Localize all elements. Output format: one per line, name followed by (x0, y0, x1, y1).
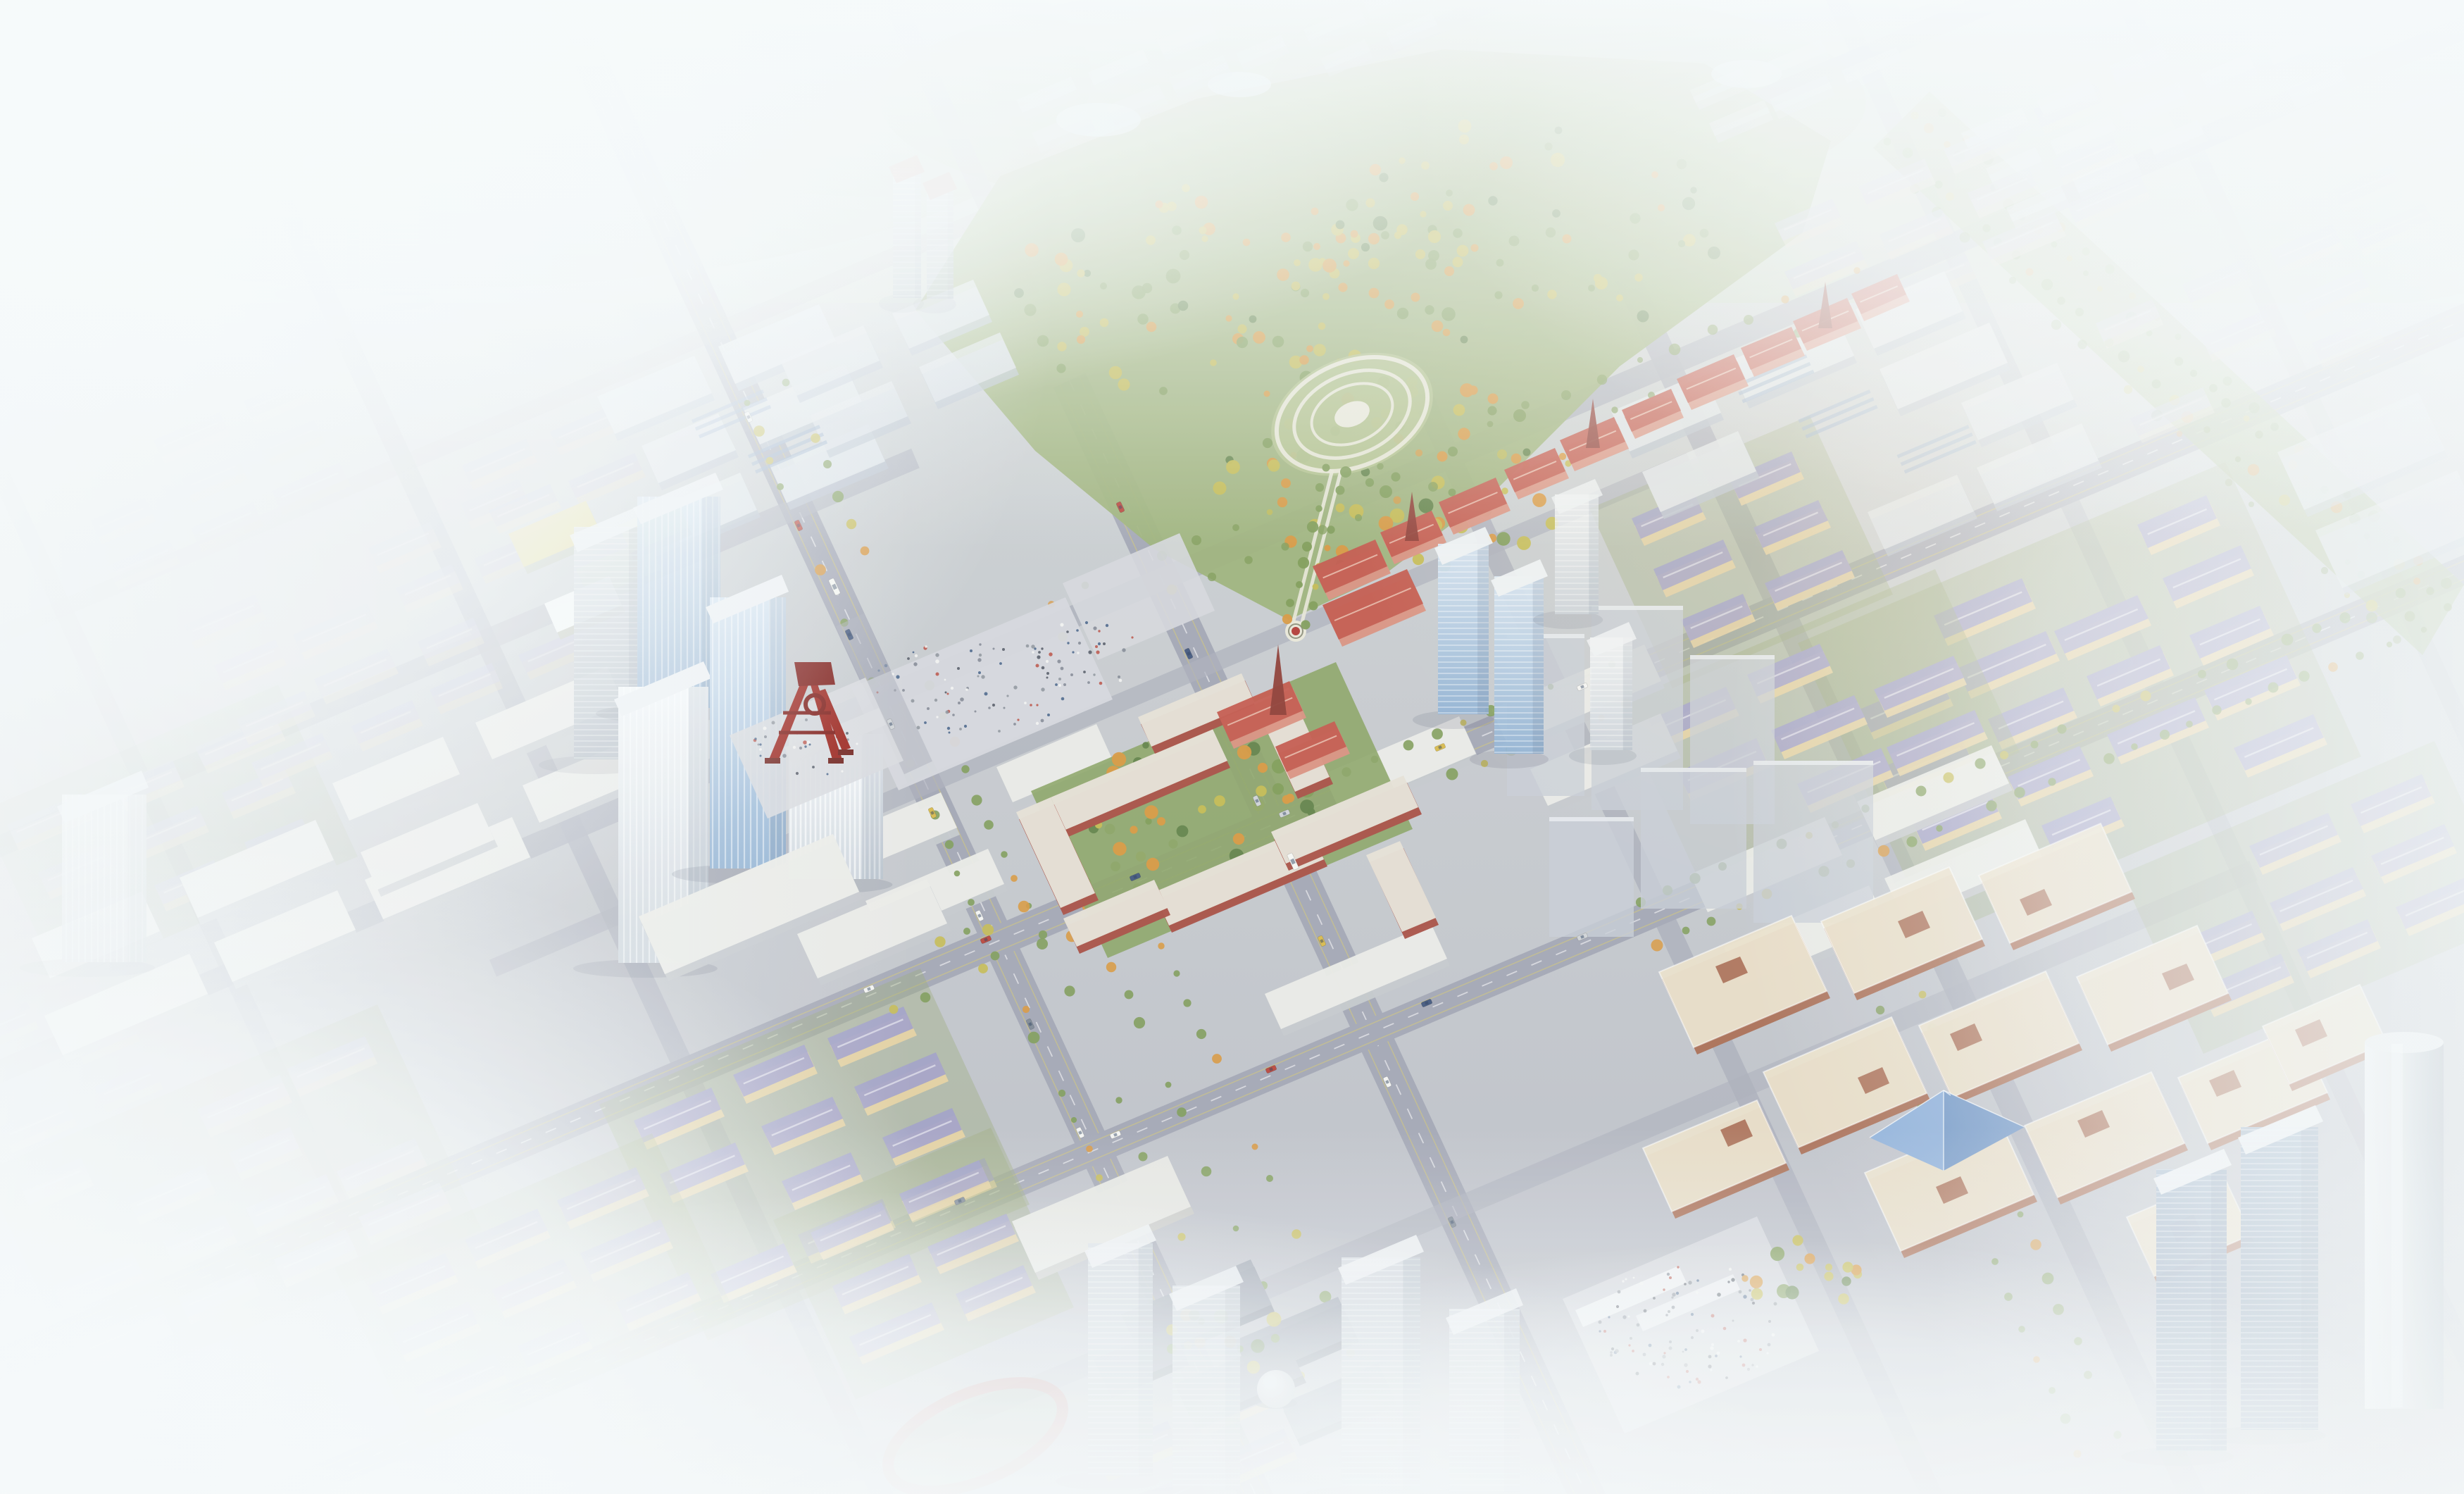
rendering-canvas (0, 0, 2464, 1494)
fog-banks (0, 0, 2464, 1494)
aerial-city-rendering: Hazy bird's-eye architectural rendering … (0, 0, 2464, 1494)
